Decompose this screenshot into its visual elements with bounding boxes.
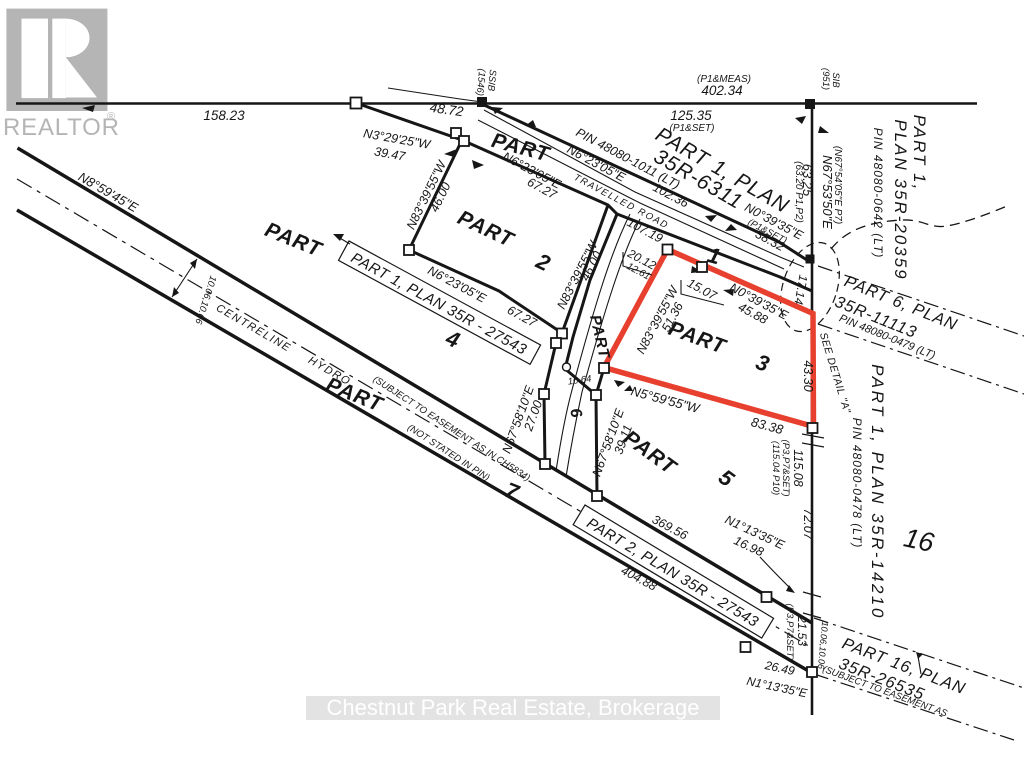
svg-text:Chestnut Park Real Estate, Bro: Chestnut Park Real Estate, Brokerage (327, 695, 700, 720)
svg-text:72.07: 72.07 (801, 508, 815, 540)
svg-text:PIN 48080-0478 (LT): PIN 48080-0478 (LT) (850, 418, 864, 549)
svg-text:(P3,P7&SET): (P3,P7&SET) (784, 603, 795, 660)
svg-text:125.35: 125.35 (670, 108, 712, 123)
svg-text:(N67°54'05"E P7): (N67°54'05"E P7) (832, 146, 843, 224)
svg-text:PIN 48080-0642 (LT): PIN 48080-0642 (LT) (871, 128, 885, 259)
svg-text:(63.20 P1,P2): (63.20 P1,P2) (793, 161, 804, 223)
svg-text:PART 1,: PART 1, (910, 115, 929, 192)
svg-text:(951): (951) (820, 68, 831, 90)
svg-text:21.53: 21.53 (795, 615, 809, 646)
svg-text:REALTOR: REALTOR (3, 114, 120, 141)
svg-text:115.08: 115.08 (791, 449, 805, 486)
svg-text:43.30: 43.30 (801, 360, 815, 391)
svg-text:402.34: 402.34 (701, 83, 742, 98)
svg-text:158.23: 158.23 (203, 108, 245, 123)
svg-text:®: ® (107, 111, 115, 123)
svg-text:(115.04 P10): (115.04 P10) (770, 441, 781, 495)
svg-text:PLAN 35R-20359: PLAN 35R-20359 (891, 119, 910, 280)
svg-text:PART 1, PLAN 35R-14210: PART 1, PLAN 35R-14210 (868, 364, 887, 620)
